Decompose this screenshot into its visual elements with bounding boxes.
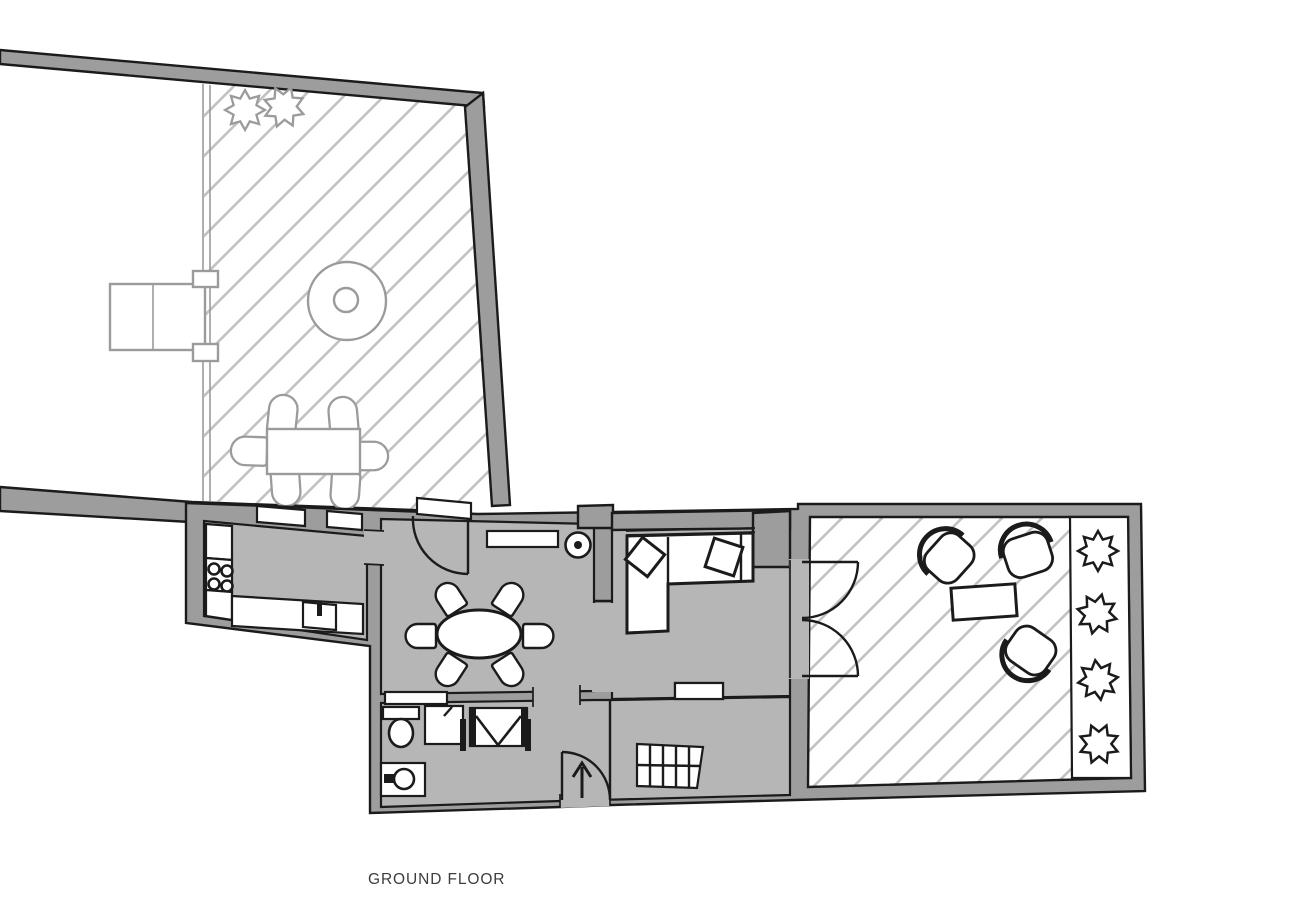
wardrobe-side — [470, 708, 476, 746]
kitchen-window — [327, 511, 362, 530]
passage-kitchen-dining — [364, 529, 384, 565]
toilet-tank — [383, 707, 419, 719]
door-jamb — [525, 719, 531, 751]
round-marker-dot — [574, 541, 582, 549]
entry-door-opening — [560, 792, 610, 808]
garden-round-table-center — [334, 288, 358, 312]
stair-landing-line — [637, 765, 700, 766]
garden-chair-icon — [330, 472, 361, 510]
kitchen-counter-south — [232, 596, 363, 634]
kitchen-tap-icon — [317, 604, 322, 616]
dining-chair-icon — [523, 624, 553, 648]
bathroom-window — [385, 692, 447, 704]
garden-area — [0, 50, 510, 538]
shower — [425, 706, 463, 744]
garden-chair-icon — [267, 394, 299, 433]
stove-burner-icon — [209, 564, 220, 575]
passage-dining-living — [592, 603, 614, 692]
floor-plan-canvas — [0, 0, 1300, 900]
dining-oval-table — [437, 610, 521, 658]
wall-cap — [364, 564, 384, 565]
stove-burner-icon — [222, 581, 233, 592]
garden-gate — [110, 284, 205, 350]
washbasin — [394, 769, 414, 789]
wall-chunk — [578, 505, 613, 528]
washbasin-tap-icon — [384, 774, 394, 783]
garden-chair-icon — [230, 436, 267, 466]
staircase — [637, 744, 703, 788]
garden-paved-zone — [0, 63, 204, 502]
stove-burner-icon — [222, 566, 233, 577]
floor-plan-page: GROUND FLOOR — [0, 0, 1300, 900]
garden-door-threshold — [417, 498, 471, 519]
planter-bush-icon — [1078, 531, 1118, 571]
garden-gate-post — [193, 271, 218, 287]
living-ne-wall — [753, 511, 790, 567]
wall-cap — [364, 530, 384, 531]
garden-gate-post — [193, 344, 218, 361]
plan-title: GROUND FLOOR — [368, 871, 505, 889]
stove-burner-icon — [209, 579, 220, 590]
stairs-window — [675, 683, 723, 699]
kitchen-counter — [206, 524, 232, 560]
garden-bush-icon — [225, 90, 265, 130]
terrace-area — [789, 517, 1131, 787]
sideboard — [487, 531, 558, 547]
door-jamb — [460, 719, 466, 751]
terrace-coffee-table — [951, 584, 1017, 620]
toilet — [389, 719, 413, 747]
passage-dining-hall — [533, 684, 580, 709]
dining-chair-icon — [406, 624, 436, 648]
garden-dining-table — [267, 429, 360, 474]
kitchen-counter — [206, 590, 232, 620]
kitchen-window — [257, 506, 305, 526]
